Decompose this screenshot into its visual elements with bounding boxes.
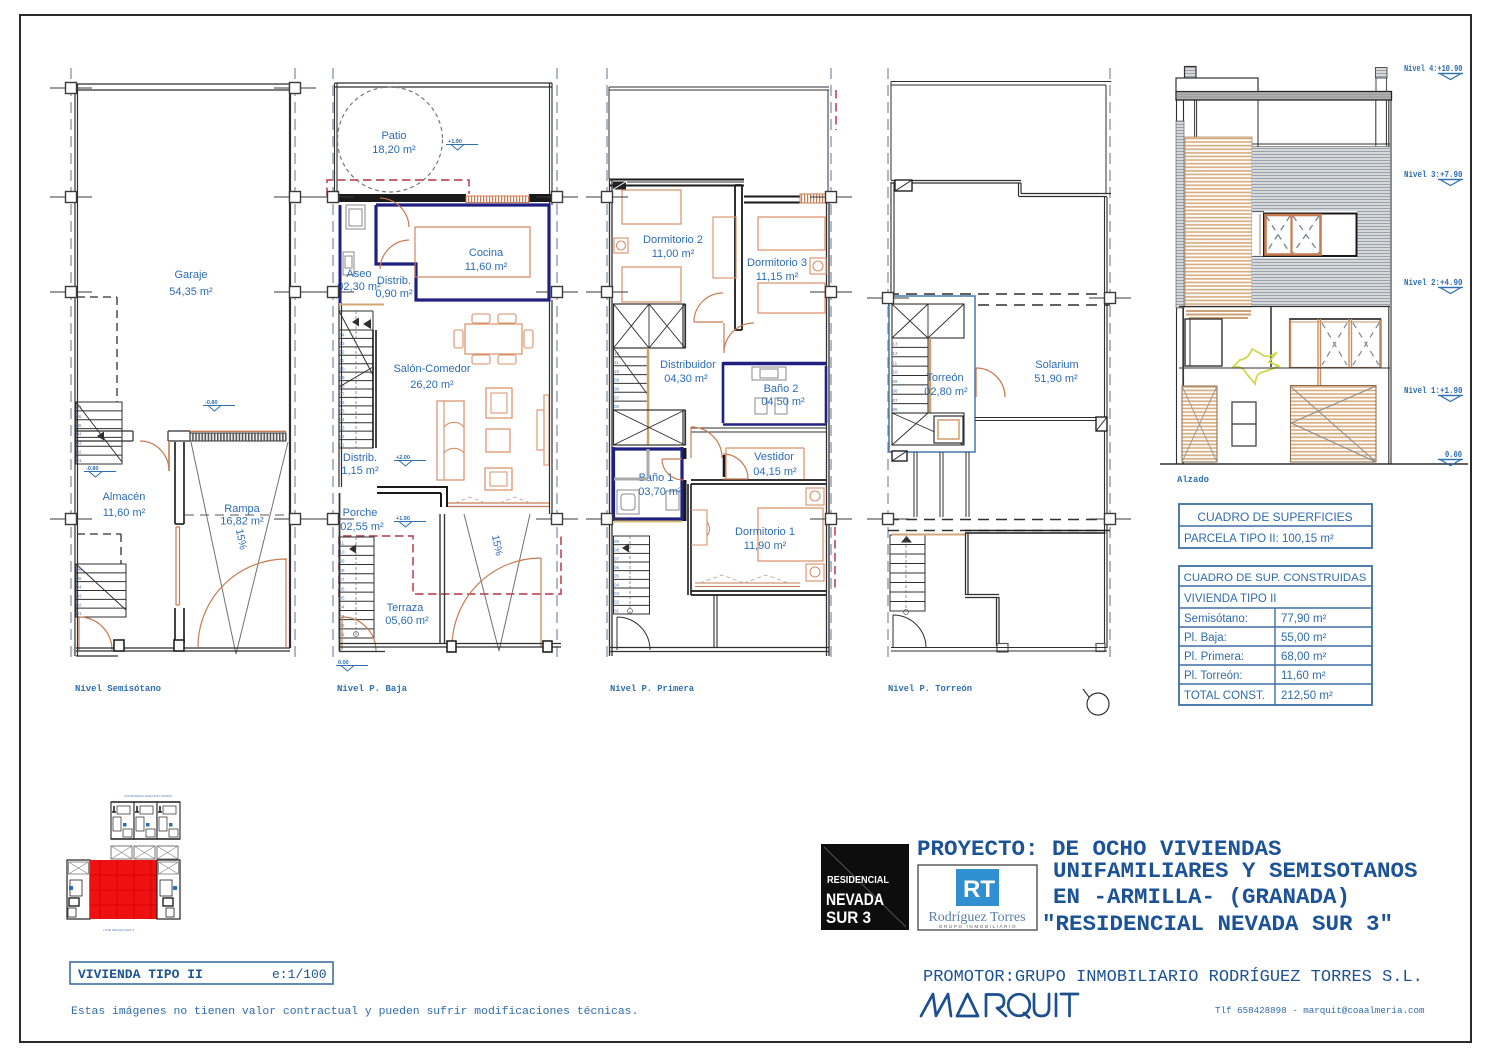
svg-text:03: 03 (77, 441, 83, 446)
svg-text:11,60 m²: 11,60 m² (465, 261, 508, 273)
svg-text:e:1/100: e:1/100 (272, 967, 327, 982)
svg-text:07: 07 (340, 392, 346, 397)
svg-text:Terraza: Terraza (387, 602, 425, 614)
svg-text:Almacén: Almacén (103, 491, 146, 503)
svg-text:10: 10 (893, 370, 899, 375)
svg-text:07: 07 (614, 556, 620, 561)
svg-text:Nivel P. Primera: Nivel P. Primera (610, 683, 694, 694)
svg-text:16,82 m²: 16,82 m² (220, 516, 264, 528)
svg-text:09: 09 (893, 379, 899, 384)
svg-text:NEVADA: NEVADA (826, 891, 884, 909)
svg-text:01: 01 (77, 458, 83, 463)
svg-text:06: 06 (340, 400, 346, 405)
svg-text:11: 11 (340, 540, 345, 545)
svg-text:06: 06 (614, 565, 620, 570)
svg-text:Nivel P. Baja: Nivel P. Baja (337, 683, 407, 694)
svg-text:PARCELA TIPO II: 100,15 m²: PARCELA TIPO II: 100,15 m² (1184, 533, 1334, 545)
svg-text:04,30 m²: 04,30 m² (664, 373, 708, 385)
svg-text:06: 06 (893, 407, 899, 412)
svg-text:14: 14 (340, 333, 346, 338)
svg-text:Vestidor: Vestidor (754, 451, 794, 463)
svg-text:Salón-Comedor: Salón-Comedor (393, 363, 470, 375)
svg-text:UNIFAMILIARES Y SEMISOTANOS: UNIFAMILIARES Y SEMISOTANOS (1053, 858, 1418, 884)
svg-text:Rampa: Rampa (224, 503, 260, 515)
svg-text:03: 03 (340, 425, 346, 430)
svg-text:02,55 m²: 02,55 m² (340, 521, 384, 533)
svg-text:06: 06 (614, 404, 620, 409)
svg-text:07: 07 (614, 395, 620, 400)
svg-text:Estas imágenes no tienen valor: Estas imágenes no tienen valor contractu… (71, 1006, 638, 1018)
svg-text:11,00 m²: 11,00 m² (652, 248, 695, 260)
svg-text:11: 11 (614, 360, 619, 365)
svg-text:Solarium: Solarium (1035, 359, 1078, 371)
svg-text:11,15 m²: 11,15 m² (756, 271, 799, 283)
svg-text:Distrib.: Distrib. (377, 275, 411, 287)
svg-text:51,90 m²: 51,90 m² (1034, 373, 1078, 385)
svg-text:Distribuidor: Distribuidor (660, 359, 716, 371)
svg-text:04: 04 (340, 605, 346, 610)
svg-text:02: 02 (77, 602, 83, 607)
svg-text:Torreón: Torreón (926, 372, 963, 384)
svg-text:Aseo: Aseo (346, 268, 371, 280)
svg-text:Distrib.: Distrib. (343, 452, 377, 464)
svg-text:0.00: 0.00 (1445, 450, 1462, 460)
svg-text:Nivel 2:+4.90: Nivel 2:+4.90 (1404, 278, 1463, 288)
svg-text:01: 01 (614, 608, 620, 613)
svg-text:05: 05 (614, 574, 620, 579)
svg-text:04: 04 (77, 585, 83, 590)
svg-text:PROMOTOR:GRUPO INMOBILIARIO RO: PROMOTOR:GRUPO INMOBILIARIO RODRÍGUEZ TO… (923, 967, 1423, 987)
svg-text:07: 07 (893, 398, 899, 403)
svg-text:LOTE RESIDENCIAL NEVADA SUR 3: LOTE RESIDENCIAL NEVADA SUR 3 VIVIENDAS (124, 794, 172, 798)
svg-text:Dormitorio 1: Dormitorio 1 (735, 526, 795, 538)
svg-text:01: 01 (340, 442, 346, 447)
svg-text:08: 08 (614, 548, 620, 553)
svg-text:Dormitorio 3: Dormitorio 3 (747, 257, 807, 269)
svg-text:12: 12 (340, 350, 346, 355)
svg-text:05,60 m²: 05,60 m² (385, 615, 429, 627)
svg-text:SUR 3: SUR 3 (826, 909, 871, 927)
svg-text:RESIDENCIAL: RESIDENCIAL (827, 874, 889, 886)
svg-text:212,50 m²: 212,50 m² (1281, 690, 1333, 702)
svg-text:03,70 m²: 03,70 m² (638, 486, 682, 498)
svg-text:11,60 m²: 11,60 m² (1281, 670, 1326, 682)
svg-text:Nivel P. Torreón: Nivel P. Torreón (888, 683, 972, 694)
svg-text:11: 11 (893, 360, 898, 365)
svg-text:18,20 m²: 18,20 m² (372, 144, 416, 156)
svg-text:EN -ARMILLA- (GRANADA): EN -ARMILLA- (GRANADA) (1053, 884, 1350, 910)
svg-text:Rodríguez Torres: Rodríguez Torres (928, 910, 1025, 925)
svg-text:01: 01 (77, 611, 83, 616)
svg-text:55,00 m²: 55,00 m² (1281, 632, 1327, 644)
svg-text:04: 04 (77, 432, 83, 437)
svg-text:05: 05 (340, 409, 346, 414)
svg-text:10: 10 (340, 550, 346, 555)
svg-text:Porche: Porche (343, 507, 378, 519)
svg-text:Alzado: Alzado (1177, 474, 1209, 485)
svg-text:03: 03 (614, 591, 620, 596)
svg-text:04: 04 (614, 582, 620, 587)
svg-text:10: 10 (614, 369, 620, 374)
svg-text:77,90 m²: 77,90 m² (1281, 613, 1327, 625)
svg-text:11,60 m²: 11,60 m² (103, 507, 146, 519)
svg-text:04,15 m²: 04,15 m² (753, 466, 797, 478)
svg-text:Baño 2: Baño 2 (764, 383, 799, 395)
svg-text:"RESIDENCIAL NEVADA SUR 3": "RESIDENCIAL NEVADA SUR 3" (1042, 911, 1393, 937)
svg-text:Nivel 3:+7.90: Nivel 3:+7.90 (1404, 170, 1463, 180)
svg-text:CUADRO DE SUP. CONSTRUIDAS: CUADRO DE SUP. CONSTRUIDAS (1184, 572, 1367, 584)
svg-text:08: 08 (614, 387, 620, 392)
svg-text:05: 05 (77, 576, 83, 581)
svg-text:Cocina: Cocina (469, 247, 504, 259)
svg-text:09: 09 (614, 378, 620, 383)
svg-text:12: 12 (893, 351, 899, 356)
svg-text:13: 13 (893, 342, 899, 347)
svg-text:Garaje: Garaje (174, 269, 207, 281)
svg-text:04: 04 (340, 417, 346, 422)
svg-text:Pl. Torreón:: Pl. Torreón: (1184, 670, 1243, 682)
svg-text:05: 05 (77, 423, 83, 428)
svg-text:Nivel Semisótano: Nivel Semisótano (75, 683, 161, 694)
svg-text:11,90 m²: 11,90 m² (744, 540, 787, 552)
svg-text:LOTE NEVADA SUR 3: LOTE NEVADA SUR 3 (103, 928, 134, 932)
svg-text:06: 06 (340, 586, 346, 591)
svg-text:11: 11 (340, 358, 345, 363)
svg-text:1,15 m²: 1,15 m² (341, 465, 379, 477)
svg-text:Tlf 658428898 - marquit@coaalm: Tlf 658428898 - marquit@coaalmeria.com (1215, 1005, 1425, 1016)
svg-text:TOTAL CONST.: TOTAL CONST. (1184, 690, 1265, 702)
svg-text:68,00 m²: 68,00 m² (1281, 651, 1327, 663)
svg-text:Nivel 4:+10.90: Nivel 4:+10.90 (1404, 64, 1463, 74)
svg-text:09: 09 (340, 559, 346, 564)
svg-text:0,90 m²: 0,90 m² (375, 288, 413, 300)
svg-text:09: 09 (614, 539, 620, 544)
svg-text:06: 06 (77, 414, 83, 419)
svg-text:Pl. Primera:: Pl. Primera: (1184, 651, 1244, 663)
svg-text:10: 10 (340, 366, 346, 371)
svg-text:02: 02 (340, 434, 346, 439)
svg-text:09: 09 (340, 375, 346, 380)
svg-text:06: 06 (77, 567, 83, 572)
svg-text:CUADRO DE SUPERFICIES: CUADRO DE SUPERFICIES (1197, 510, 1352, 524)
svg-text:08: 08 (893, 388, 899, 393)
svg-text:Semisótano:: Semisótano: (1184, 613, 1248, 625)
svg-text:02,80 m²: 02,80 m² (924, 386, 968, 398)
svg-text:04,50 m²: 04,50 m² (761, 396, 805, 408)
svg-text:VIVIENDA TIPO II: VIVIENDA TIPO II (1184, 593, 1276, 605)
svg-text:54,35 m²: 54,35 m² (169, 286, 213, 298)
svg-text:02: 02 (77, 449, 83, 454)
svg-text:Patio: Patio (381, 130, 406, 142)
svg-text:RT: RT (963, 876, 995, 903)
svg-text:02: 02 (614, 600, 620, 605)
svg-text:13: 13 (340, 341, 346, 346)
svg-text:Pl. Baja:: Pl. Baja: (1184, 632, 1227, 644)
svg-text:07: 07 (340, 577, 346, 582)
svg-text:05: 05 (340, 595, 346, 600)
svg-text:26,20 m²: 26,20 m² (410, 379, 454, 391)
svg-text:08: 08 (340, 568, 346, 573)
svg-text:GRUPO INMOBILIARIO: GRUPO INMOBILIARIO (939, 924, 1017, 929)
svg-text:03: 03 (77, 594, 83, 599)
svg-text:VIVIENDA TIPO II: VIVIENDA TIPO II (78, 967, 203, 982)
svg-text:Nivel 1:+1.90: Nivel 1:+1.90 (1404, 386, 1463, 396)
svg-text:Dormitorio 2: Dormitorio 2 (643, 234, 703, 246)
